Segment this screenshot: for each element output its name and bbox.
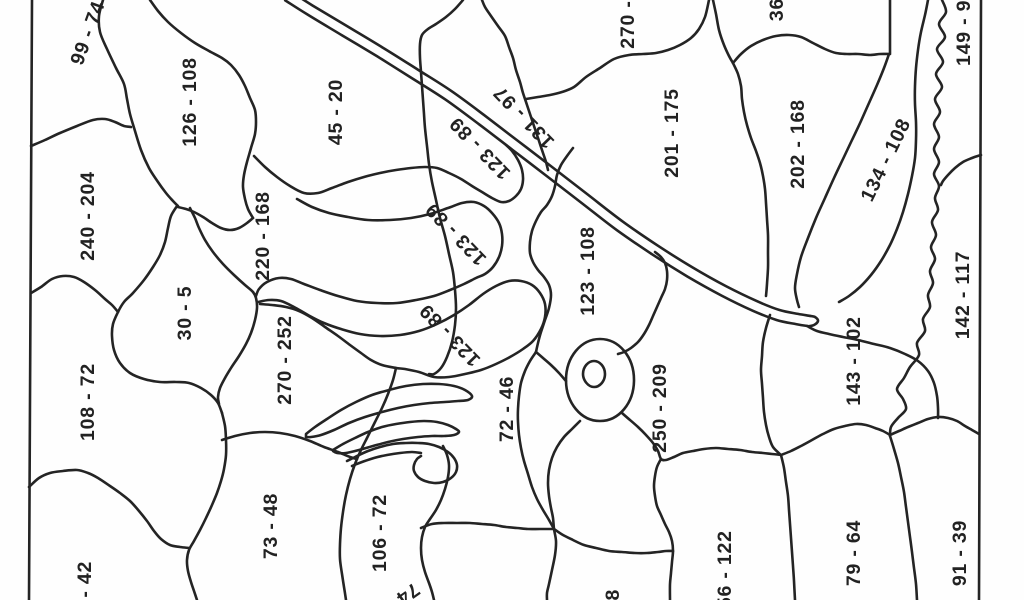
svg-text:36 - 14: 36 - 14 bbox=[766, 0, 788, 21]
svg-text:106 - 72: 106 - 72 bbox=[369, 494, 391, 572]
svg-text:149 - 98: 149 - 98 bbox=[953, 0, 975, 66]
svg-text:108 - 72: 108 - 72 bbox=[77, 363, 99, 441]
svg-text:72 - 46: 72 - 46 bbox=[496, 376, 518, 442]
svg-text:134 - 108: 134 - 108 bbox=[856, 115, 915, 205]
svg-text:66 - 42: 66 - 42 bbox=[74, 561, 96, 600]
svg-text:142 - 117: 142 - 117 bbox=[952, 251, 974, 340]
svg-text:56 - 38: 56 - 38 bbox=[602, 589, 624, 600]
svg-text:270 - 246: 270 - 246 bbox=[617, 0, 639, 49]
svg-text:45 - 20: 45 - 20 bbox=[325, 79, 347, 145]
svg-text:123 - 89: 123 - 89 bbox=[445, 112, 515, 183]
svg-text:240 - 204: 240 - 204 bbox=[77, 171, 99, 261]
svg-text:201 - 175: 201 - 175 bbox=[661, 88, 683, 178]
svg-text:270 - 252: 270 - 252 bbox=[274, 315, 296, 405]
svg-text:123 - 108: 123 - 108 bbox=[577, 226, 599, 316]
svg-text:30 - 5: 30 - 5 bbox=[174, 286, 196, 341]
svg-text:73 - 48: 73 - 48 bbox=[260, 493, 282, 559]
svg-text:74 - 26: 74 - 26 bbox=[357, 578, 424, 600]
svg-text:123 - 89: 123 - 89 bbox=[415, 299, 485, 370]
svg-text:91 - 39: 91 - 39 bbox=[949, 520, 971, 586]
svg-text:143 - 102: 143 - 102 bbox=[843, 316, 865, 406]
svg-text:156 - 122: 156 - 122 bbox=[714, 530, 736, 600]
svg-text:126 - 108: 126 - 108 bbox=[179, 57, 201, 147]
svg-text:220 - 168: 220 - 168 bbox=[252, 191, 274, 281]
svg-text:79 - 64: 79 - 64 bbox=[843, 520, 865, 586]
svg-text:123 - 89: 123 - 89 bbox=[421, 198, 491, 269]
svg-text:202 - 168: 202 - 168 bbox=[787, 99, 809, 189]
svg-text:250 - 209: 250 - 209 bbox=[649, 363, 671, 453]
svg-text:99 - 74: 99 - 74 bbox=[66, 0, 109, 68]
